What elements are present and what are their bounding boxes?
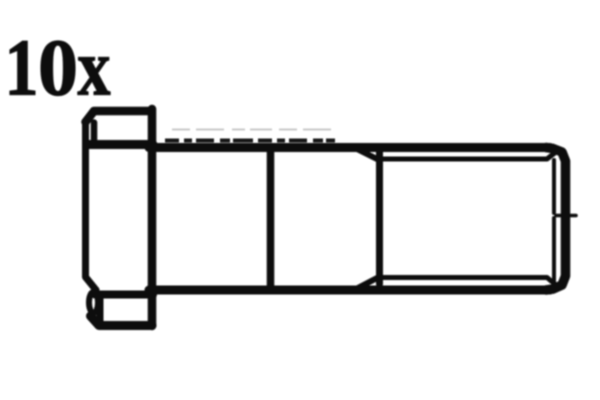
svg-text:x: x xyxy=(78,25,111,113)
svg-text:1: 1 xyxy=(5,25,39,113)
svg-text:0: 0 xyxy=(38,25,78,113)
